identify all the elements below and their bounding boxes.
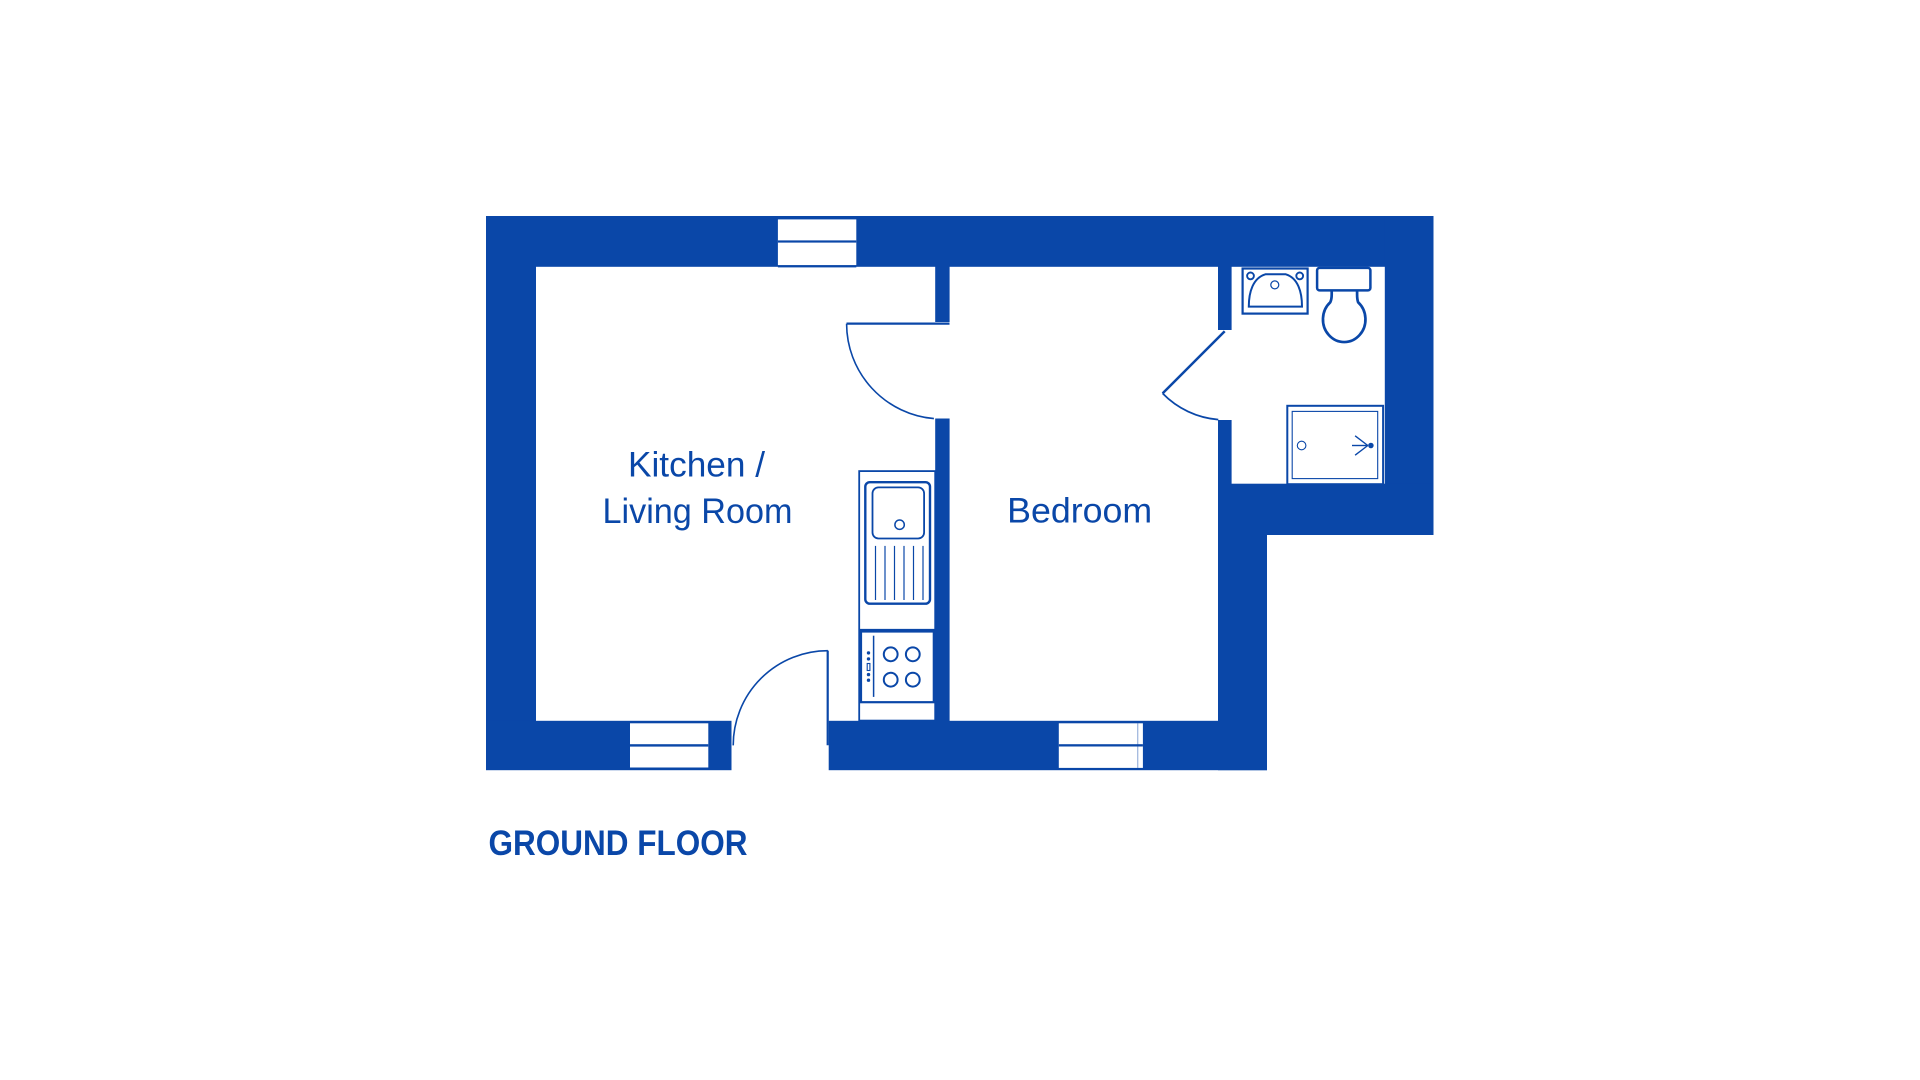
svg-text:Kitchen /: Kitchen / (628, 444, 765, 484)
svg-text:GROUND FLOOR: GROUND FLOOR (489, 823, 748, 863)
svg-text:Bedroom: Bedroom (1007, 491, 1152, 531)
svg-text:Living Room: Living Room (603, 491, 793, 531)
